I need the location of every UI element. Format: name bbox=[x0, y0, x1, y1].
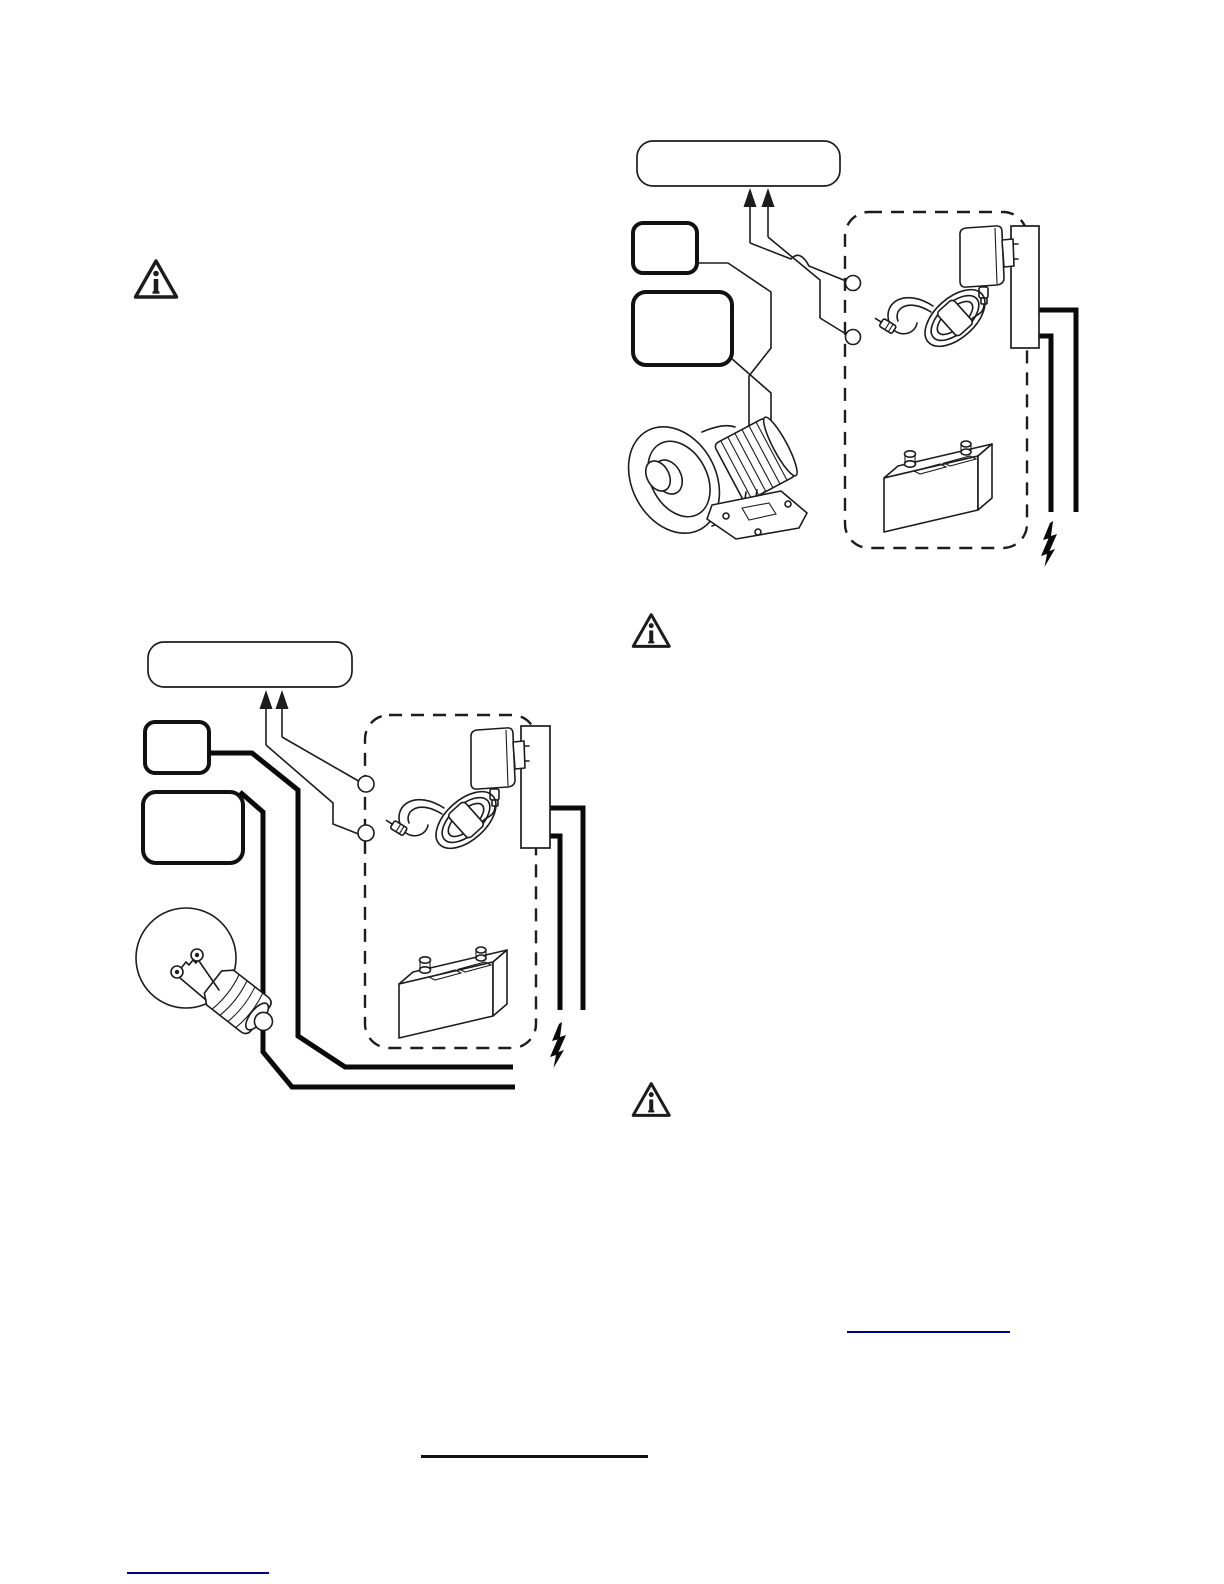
up-arrows bbox=[260, 690, 289, 745]
lightning-bolt-icon bbox=[1041, 521, 1057, 567]
battery bbox=[399, 947, 507, 1038]
callout-large-box bbox=[143, 792, 243, 863]
power-wire-inner bbox=[1039, 336, 1051, 512]
power-wire-outer bbox=[1039, 310, 1076, 512]
diagram-canvas bbox=[0, 0, 1224, 1584]
ac-adapter bbox=[384, 728, 529, 859]
up-arrows bbox=[744, 188, 775, 243]
ac-adapter bbox=[873, 226, 1018, 357]
callout-small-box bbox=[633, 223, 697, 273]
footnote-link-bottom-left[interactable] bbox=[127, 1572, 269, 1574]
terminal-circle-1 bbox=[846, 276, 861, 291]
callout-title-box bbox=[148, 642, 352, 687]
wire-left-arrow-to-terminal2 bbox=[266, 745, 359, 834]
outlet-strip bbox=[521, 726, 550, 848]
callout-small-box bbox=[145, 722, 209, 773]
info-triangle-icon-3 bbox=[633, 1084, 669, 1116]
footnote-link-right[interactable] bbox=[847, 1331, 1010, 1333]
lightning-bolt-icon bbox=[550, 1022, 566, 1068]
thick-wire-largebox bbox=[240, 792, 515, 1087]
info-triangle-icon-1 bbox=[136, 261, 177, 297]
battery bbox=[884, 441, 992, 532]
terminal-circle-2 bbox=[358, 825, 374, 841]
diagram-bulb bbox=[136, 642, 583, 1087]
diagram-siren bbox=[611, 141, 1076, 567]
wire-right-arrow-to-terminal1 bbox=[282, 737, 359, 781]
callout-large-box bbox=[633, 292, 732, 365]
power-wire-inner bbox=[550, 836, 560, 1010]
callout-title-box bbox=[637, 141, 840, 186]
terminal-circle-2 bbox=[846, 330, 861, 345]
manual-page bbox=[0, 0, 1224, 1584]
wire-largebox-to-siren bbox=[731, 358, 771, 426]
info-triangle-icon-2 bbox=[633, 615, 669, 647]
terminal-circle-1 bbox=[358, 776, 374, 792]
heading-underline-rule bbox=[421, 1455, 648, 1458]
horn-siren-icon bbox=[611, 411, 807, 549]
wire-right-arrow-to-terminal2 bbox=[768, 237, 846, 334]
